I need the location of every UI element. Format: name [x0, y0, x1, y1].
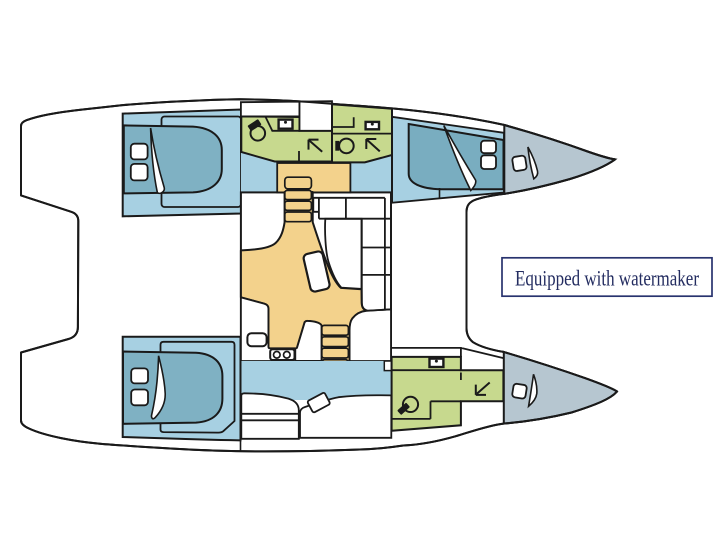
- svg-text:Equipped with watermaker: Equipped with watermaker: [515, 266, 700, 291]
